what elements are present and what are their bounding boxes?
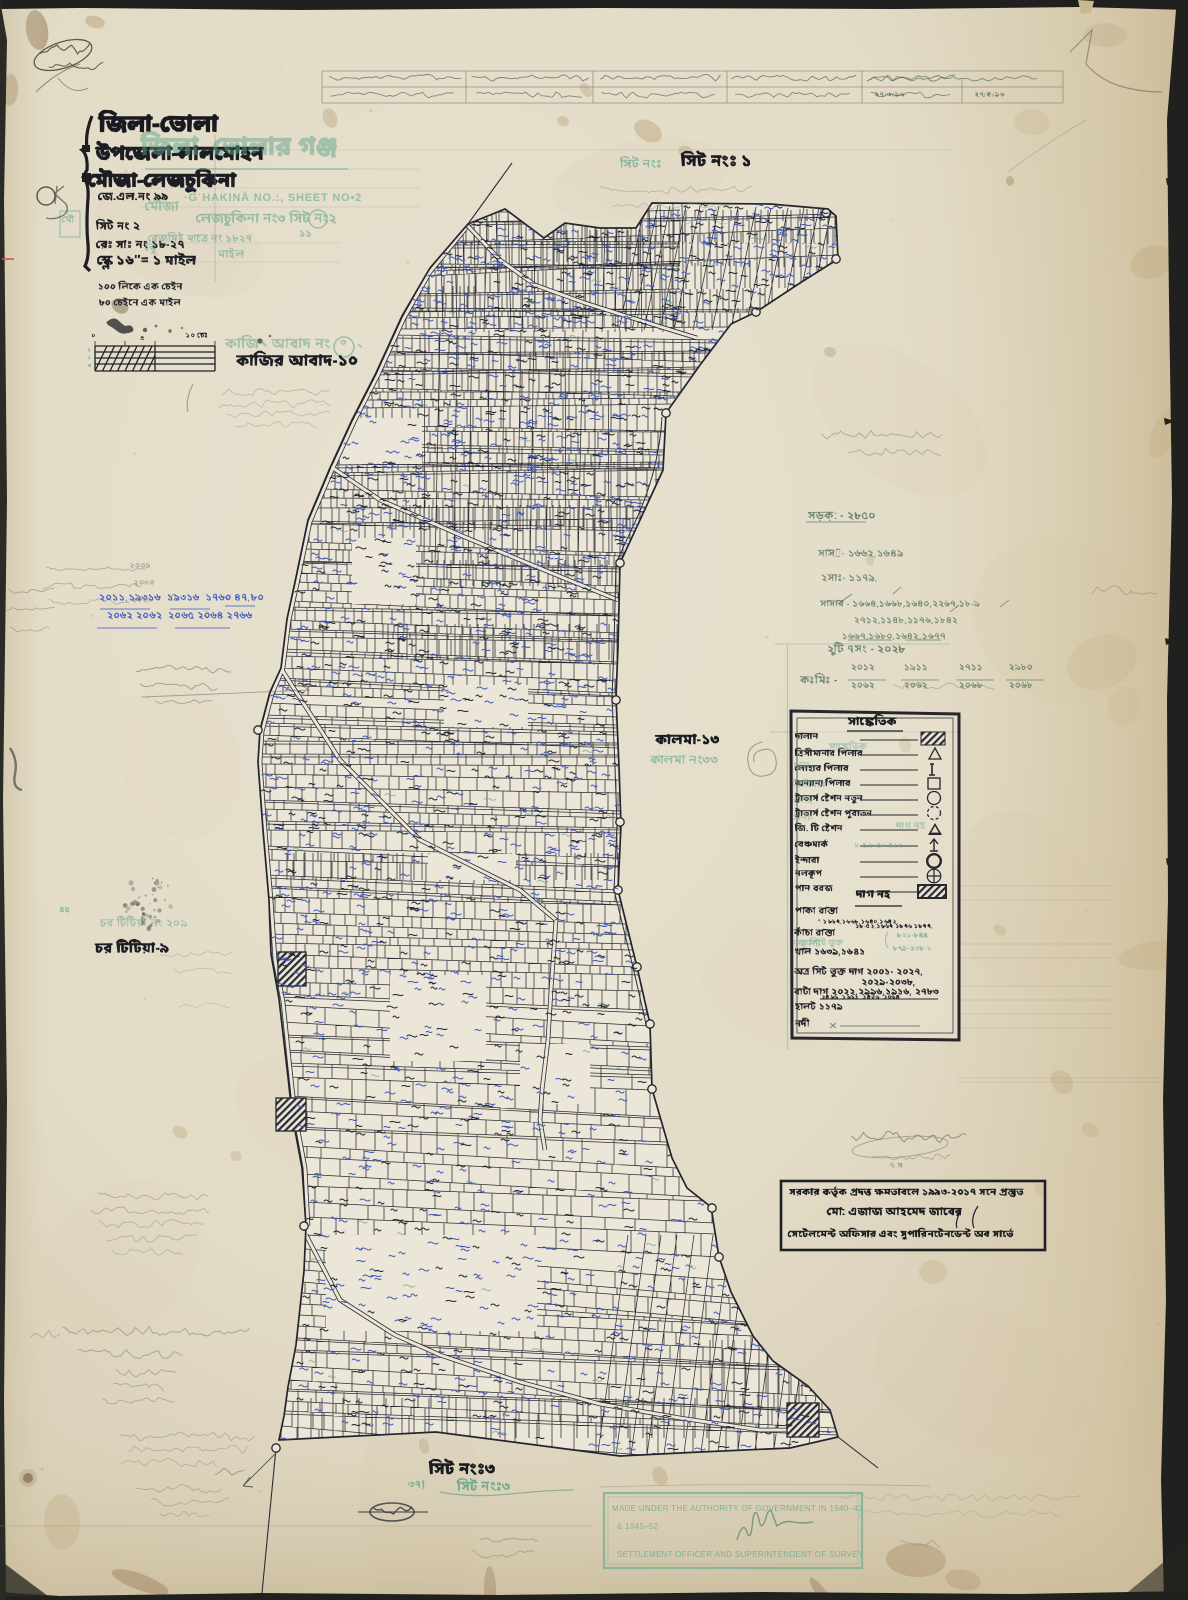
svg-text:SETTLEMENT OFFICER AND SUPERIN: SETTLEMENT OFFICER AND SUPERINTENDENT OF… xyxy=(617,1550,864,1559)
svg-text:& 1945–52: & 1945–52 xyxy=(617,1522,659,1531)
svg-text:·GˈHAKINĀ NO.:, SHEET NO•2: ·GˈHAKINĀ NO.:, SHEET NO•2 xyxy=(184,192,362,204)
svg-text:MADE UNDER THE AUTHORITY OF GO: MADE UNDER THE AUTHORITY OF GOVERNMENT I… xyxy=(612,1504,863,1513)
